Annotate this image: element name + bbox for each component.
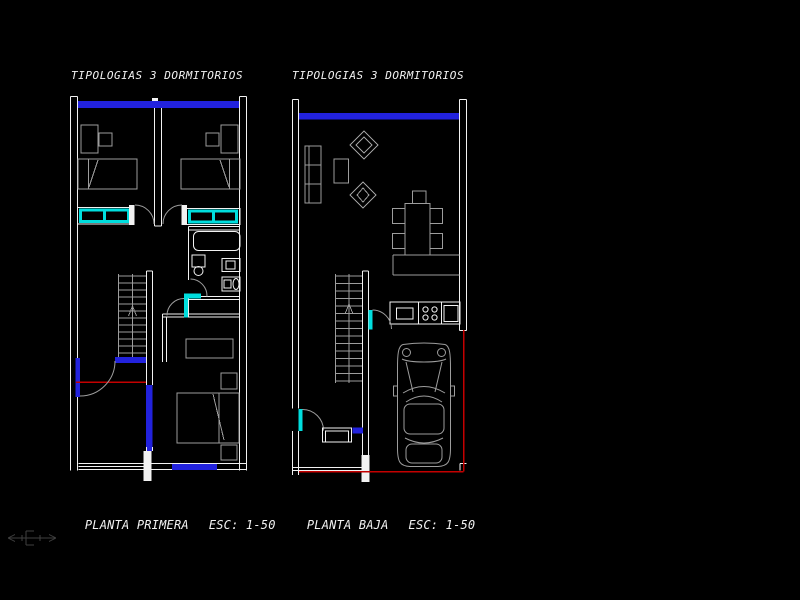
door-swing-arc [303, 410, 324, 431]
wall-segment-blue-middle [146, 385, 153, 451]
wardrobe-right [187, 209, 241, 225]
nightstand [221, 445, 237, 460]
plan-planta-primera [71, 97, 247, 482]
kitchen [369, 302, 461, 330]
door-swing-arc [135, 205, 154, 224]
sink [222, 259, 240, 272]
garage [299, 330, 464, 472]
door-swing-arc [80, 361, 115, 396]
window-band-top [78, 101, 239, 108]
headlight [403, 349, 411, 357]
counter [393, 255, 460, 275]
stair-wall [363, 271, 369, 482]
chair [430, 209, 443, 224]
door-swing-arc [167, 299, 184, 316]
bedroom-2 [181, 125, 240, 189]
roof [404, 404, 444, 434]
caption-label: PLANTA BAJA [307, 518, 389, 532]
armchair [334, 159, 349, 183]
plan-caption-baja: PLANTA BAJAESC: 1-50 [292, 504, 475, 532]
trunk [406, 444, 442, 463]
entry [299, 409, 364, 442]
side-table-diamond [350, 131, 378, 159]
bedroom-1 [78, 125, 137, 189]
scale-label: ESC: 1-50 [409, 518, 476, 532]
side-table-diamond [350, 182, 376, 208]
bidet [222, 277, 240, 291]
door-swing-arc [163, 205, 182, 224]
plan-title-primera: TIPOLOGIAS 3 DORMITORIOS [71, 69, 243, 82]
wall-segment-blue-left [76, 358, 81, 397]
side-mirror [394, 386, 398, 396]
door-jamb [182, 205, 188, 225]
chair [99, 133, 112, 146]
stove-burners [423, 307, 437, 320]
bathtub [194, 232, 241, 251]
kitchen-door [369, 310, 392, 330]
chair [413, 191, 427, 204]
door-sill-cyan [184, 294, 201, 299]
sofa [305, 146, 321, 203]
bed [181, 159, 240, 189]
rear-window [405, 438, 443, 443]
door-swing-arc [373, 310, 392, 329]
side-mirror [451, 386, 455, 396]
kitchen-appliance [444, 306, 458, 322]
dining-area [393, 191, 460, 275]
window-bottom [172, 464, 217, 470]
wall-segment-blue [353, 428, 364, 434]
plan-caption-primera: PLANTA PRIMERAESC: 1-50 [70, 504, 276, 532]
door-jamb-cyan [184, 299, 188, 318]
nightstand [221, 373, 237, 389]
kitchen-sink [397, 308, 414, 319]
headlight [438, 349, 446, 357]
bedroom-doors [129, 205, 187, 225]
wall-segment-blue-stair [115, 357, 146, 363]
windshield [403, 387, 445, 403]
door-jamb-cyan [369, 310, 373, 330]
staircase-upper [119, 274, 147, 357]
desk [221, 125, 238, 153]
dining-table [405, 204, 430, 256]
chair [393, 234, 406, 249]
car-top-view [394, 343, 455, 467]
chair [393, 209, 406, 224]
garage-boundary-red [299, 330, 464, 472]
ucs-axis-icon [8, 531, 56, 545]
bathroom [191, 232, 241, 297]
desk [81, 125, 98, 153]
scale-label: ESC: 1-50 [209, 518, 276, 532]
wardrobe [186, 339, 233, 358]
wardrobe-left [78, 208, 132, 225]
entry-step [323, 428, 352, 442]
bedroom-3 [177, 339, 239, 460]
chair [206, 133, 219, 146]
exterior-walls [293, 100, 467, 483]
plan-planta-baja [293, 100, 467, 483]
staircase-lower [336, 271, 369, 482]
door-jamb-cyan [299, 409, 303, 431]
living-room [305, 131, 378, 208]
toilet [192, 255, 205, 276]
window-band-top [299, 113, 459, 120]
chair [430, 234, 443, 249]
caption-label: PLANTA PRIMERA [85, 518, 189, 532]
plan-title-baja: TIPOLOGIAS 3 DORMITORIOS [292, 69, 464, 82]
bed [78, 159, 137, 189]
bed [177, 393, 239, 443]
wall-pier [144, 451, 152, 481]
door-jamb [129, 205, 135, 225]
